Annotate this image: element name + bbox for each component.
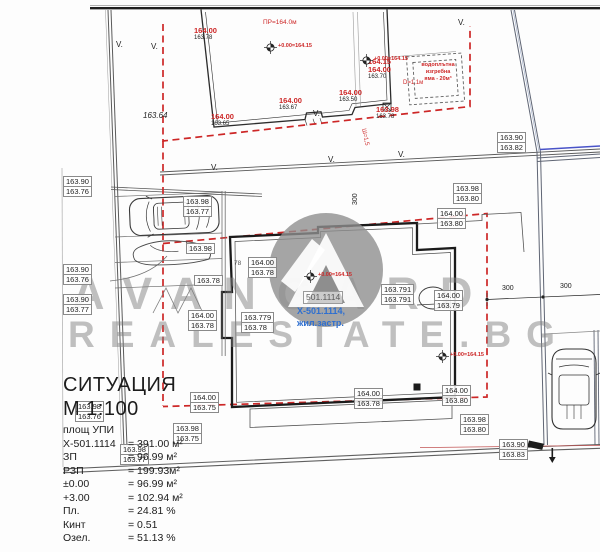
plan-text: V. — [458, 18, 465, 27]
legend-title: СИТУАЦИЯ — [63, 374, 273, 396]
legend-row: площ УПИ — [63, 424, 273, 438]
elevation-label: 163.78 — [194, 275, 223, 286]
elevation-label-pair: 164.00163.79 — [434, 290, 463, 311]
legend-row: +3.00= 102.94 м² — [63, 492, 273, 506]
legend-row-value: = 102.94 м² — [128, 492, 273, 506]
plan-text: ПР=164.0м — [263, 19, 297, 26]
legend-row-label: ЗП — [63, 451, 128, 465]
legend-row-label: +3.00 — [63, 492, 128, 506]
plan-text: V. — [116, 40, 123, 49]
elevation-label-pair: 164.00163.80 — [442, 385, 471, 406]
legend-row-value: = 391.00 м² — [128, 438, 273, 452]
plan-text: 163.64 — [143, 111, 167, 120]
legend-row-label: площ УПИ — [63, 424, 128, 438]
design-elevation-label: 164.00163.78 — [194, 27, 217, 42]
legend-scale: М 1:100 — [63, 398, 273, 420]
plan-text: Ш=1,5 — [360, 128, 369, 146]
legend-row: Пл.= 24.81 % — [63, 505, 273, 519]
elevation-label-pair: 164.00163.78 — [248, 257, 277, 278]
legend-row-label: Кинт — [63, 519, 128, 533]
legend-row-label: X-501.1114 — [63, 438, 128, 452]
elevation-label-pair: 164.00163.78 — [188, 310, 217, 331]
benchmark-elevation-label: +0.00=164.15 — [278, 43, 312, 49]
plan-text: 300 — [502, 285, 514, 292]
parcel-id-text: X-501.1114, — [297, 306, 345, 316]
legend-row: X-501.1114= 391.00 м² — [63, 438, 273, 452]
legend-row: Кинт= 0.51 — [63, 519, 273, 533]
legend-row-label: Пл. — [63, 505, 128, 519]
legend-row-label: Озел. — [63, 532, 128, 546]
cesspool-note: водоплътна изгребна яма - 20м³ — [410, 62, 466, 82]
plan-text: V. — [211, 163, 218, 172]
elevation-label-pair: 163.90163.76 — [63, 176, 92, 197]
plan-text: 300 — [352, 193, 359, 205]
legend-row: ±0.00= 96.99 м² — [63, 478, 273, 492]
legend-row: ЗП= 96.99 м² — [63, 451, 273, 465]
elevation-label: 163.98 — [186, 243, 215, 254]
parcel-number-label: 501.1114 — [303, 291, 343, 304]
legend-row-value: = 96.99 м² — [128, 451, 273, 465]
elevation-label-pair: 163.98163.80 — [453, 183, 482, 204]
legend-row-label: РЗП — [63, 465, 128, 479]
legend-rows: площ УПИX-501.1114= 391.00 м²ЗП= 96.99 м… — [63, 424, 273, 546]
plan-text: 300 — [560, 283, 572, 290]
legend-row-label: ±0.00 — [63, 478, 128, 492]
site-plan-page: AVANGARD REALESTATE.BG 163.90163.76163.9… — [0, 0, 600, 552]
benchmark-elevation-label: +0.00=164.15 — [318, 272, 352, 278]
elevation-label-pair: 163.90163.82 — [497, 132, 526, 153]
legend-row-value: = 96.99 м² — [128, 478, 273, 492]
legend-block: СИТУАЦИЯ М 1:100 площ УПИX-501.1114= 391… — [63, 374, 273, 546]
elevation-label-pair: 164.00163.80 — [437, 208, 466, 229]
elevation-label-pair: 163.791163.791 — [381, 284, 414, 305]
legend-row-value: = 24.81 % — [128, 505, 273, 519]
benchmark-elevation-label: +0.00=164.15 — [450, 352, 484, 358]
legend-row-value: = 0.51 — [128, 519, 273, 533]
plan-text: V. — [328, 155, 335, 164]
elevation-label-pair: 163.90163.76 — [63, 264, 92, 285]
legend-row: Озел.= 51.13 % — [63, 532, 273, 546]
elevation-label-pair: 163.779163.78 — [241, 312, 274, 333]
parcel-use-text: жил.застр. — [297, 318, 344, 328]
design-elevation-label: 164.00163.50 — [339, 89, 362, 104]
elevation-label-pair: 163.98163.77 — [183, 196, 212, 217]
elevation-label-pair: 163.98163.80 — [460, 414, 489, 435]
elevation-label-pair: 163.90163.83 — [499, 439, 528, 460]
legend-row-value: = 199.93м² — [128, 465, 273, 479]
design-elevation-label: 164.00163.65 — [211, 113, 234, 128]
plan-text: V. — [313, 109, 320, 118]
benchmark-elevation-label: +0.00=164.15 — [374, 56, 408, 62]
elevation-label-pair: 163.90163.77 — [63, 294, 92, 315]
legend-row: РЗП= 199.93м² — [63, 465, 273, 479]
plan-text: 78 — [234, 260, 241, 267]
design-elevation-label: 164.00163.67 — [279, 97, 302, 112]
legend-row-value — [128, 424, 273, 438]
design-elevation-label: 163.98163.78 — [376, 106, 399, 121]
plan-text: V. — [398, 150, 405, 159]
plan-text: V. — [151, 42, 158, 51]
elevation-label-pair: 164.00163.78 — [354, 388, 383, 409]
legend-row-value: = 51.13 % — [128, 532, 273, 546]
